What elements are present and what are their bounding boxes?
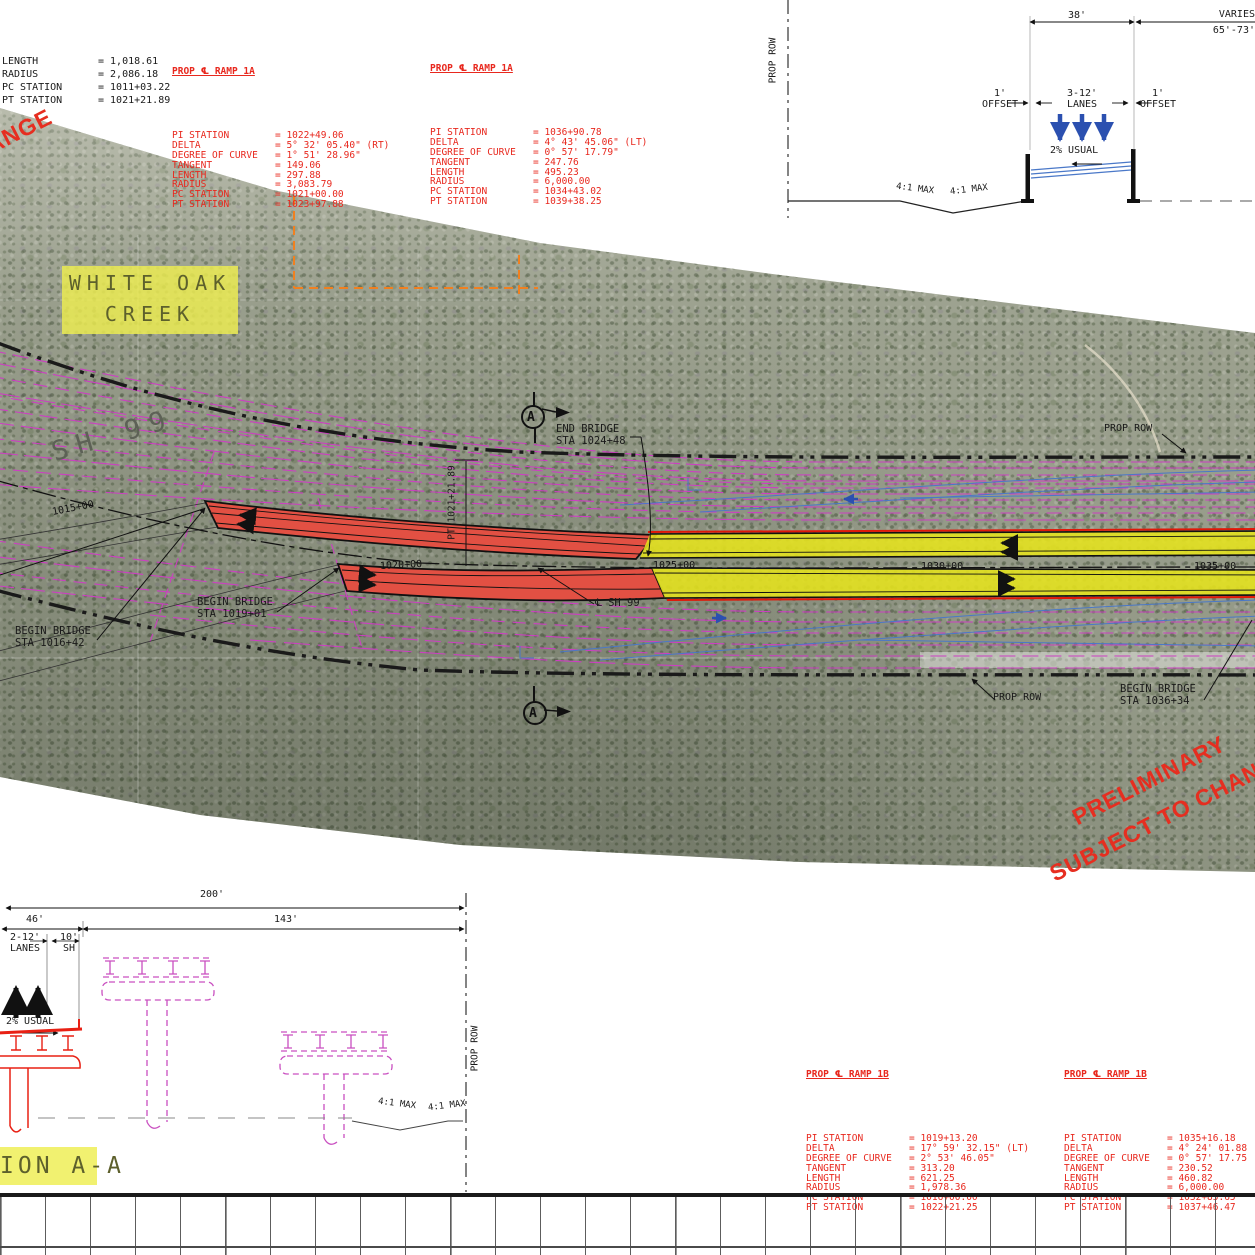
table-row: PT STATION= 1039+38.25 (430, 197, 647, 207)
title-block-grid (0, 1193, 1255, 1255)
curve-table-title: PROP ℄ RAMP 1A (430, 64, 647, 74)
end-bridge-label: END BRIDGE STA 1024+48 (556, 424, 626, 447)
red-bridge-section (0, 1019, 82, 1132)
begin-bridge-label-west1: BEGIN BRIDGE STA 1016+42 (15, 626, 91, 649)
dim-200: 200' (200, 890, 224, 901)
curve-table-ramp1a-west: PROP ℄ RAMP 1A PI STATION= 1022+49.06DEL… (172, 47, 389, 229)
curve-table-title: PROP ℄ RAMP 1A (172, 67, 389, 77)
table-row: PT STATION= 1023+97.88 (172, 200, 389, 210)
begin-bridge-label-west2: BEGIN BRIDGE STA 1019+01 (197, 597, 273, 620)
slope-label-aa: 2% USUAL (6, 1017, 54, 1028)
dim-143: 143' (274, 915, 298, 926)
prop-row-label-section: PROP ROW (470, 1020, 481, 1078)
table-row: RADIUS= 2,086.18 (2, 68, 170, 81)
prop-row-label-south: PROP ROW (993, 692, 1041, 704)
dim-38: 38' (1068, 11, 1086, 22)
dim-46: 46' (26, 915, 44, 926)
section-marker-letter-bottom: A (529, 706, 537, 721)
grid-divider (0, 1246, 1255, 1248)
table-row: LENGTH= 1,018.61 (2, 55, 170, 68)
dim-varies: VARIES (1203, 10, 1255, 21)
pt-station-label: PT 1021+21.89 (447, 448, 458, 558)
dim-offset-left: 1' OFFSET (978, 89, 1022, 110)
dim-lanes-aa: 2-12' LANES (4, 933, 46, 954)
drainage-lines (520, 470, 1255, 660)
slope-label-xsec: 2% USUAL (1050, 146, 1098, 157)
curve-table-ramp1a-east: PROP ℄ RAMP 1A PI STATION= 1036+90.78DEL… (430, 44, 647, 226)
table-row: PC STATION= 1011+03.22 (2, 81, 170, 94)
light-band (920, 652, 1255, 668)
dim-offset-right: 1' OFFSET (1136, 89, 1180, 110)
lane-direction-arrows (1060, 114, 1104, 140)
station-label: 1030+00 (921, 561, 963, 572)
station-label: 1020+00 (380, 559, 423, 572)
dirt-trail (1085, 345, 1160, 452)
prop-row-label-north: PROP ROW (1104, 423, 1152, 435)
curve-table-title: PROP ℄ RAMP 1B (806, 1070, 1029, 1080)
existing-contour-lines (0, 350, 1255, 668)
row-lines (0, 342, 1255, 675)
dim-lanes: 3-12' LANES (1060, 89, 1104, 110)
begin-bridge-label-east: BEGIN BRIDGE STA 1036+34 (1120, 684, 1196, 707)
curve-table-title: PROP ℄ RAMP 1B (1064, 1070, 1247, 1080)
centerline-label: ℄ SH 99 (595, 598, 640, 610)
dim-shoulder-aa: 10' SH (52, 933, 86, 954)
proposed-bridges (205, 501, 665, 600)
plan-sheet: LENGTH= 1,018.61RADIUS= 2,086.18PC STATI… (0, 0, 1255, 1255)
station-label: 1035+00 (1194, 561, 1236, 572)
creek-label: WHITE OAK CREEK (62, 266, 238, 334)
section-marker-letter-top: A (527, 410, 535, 425)
table-row: PT STATION= 1021+21.89 (2, 94, 170, 107)
future-bridge-sections (102, 958, 392, 1144)
dim-varies-range: 65'-73' (1203, 26, 1255, 37)
section-aa-title: ION A-A (0, 1147, 97, 1185)
up-arrows (16, 988, 38, 1018)
prop-row-label-xsec: PROP ROW (768, 32, 779, 90)
station-label: 1025+00 (653, 560, 695, 571)
